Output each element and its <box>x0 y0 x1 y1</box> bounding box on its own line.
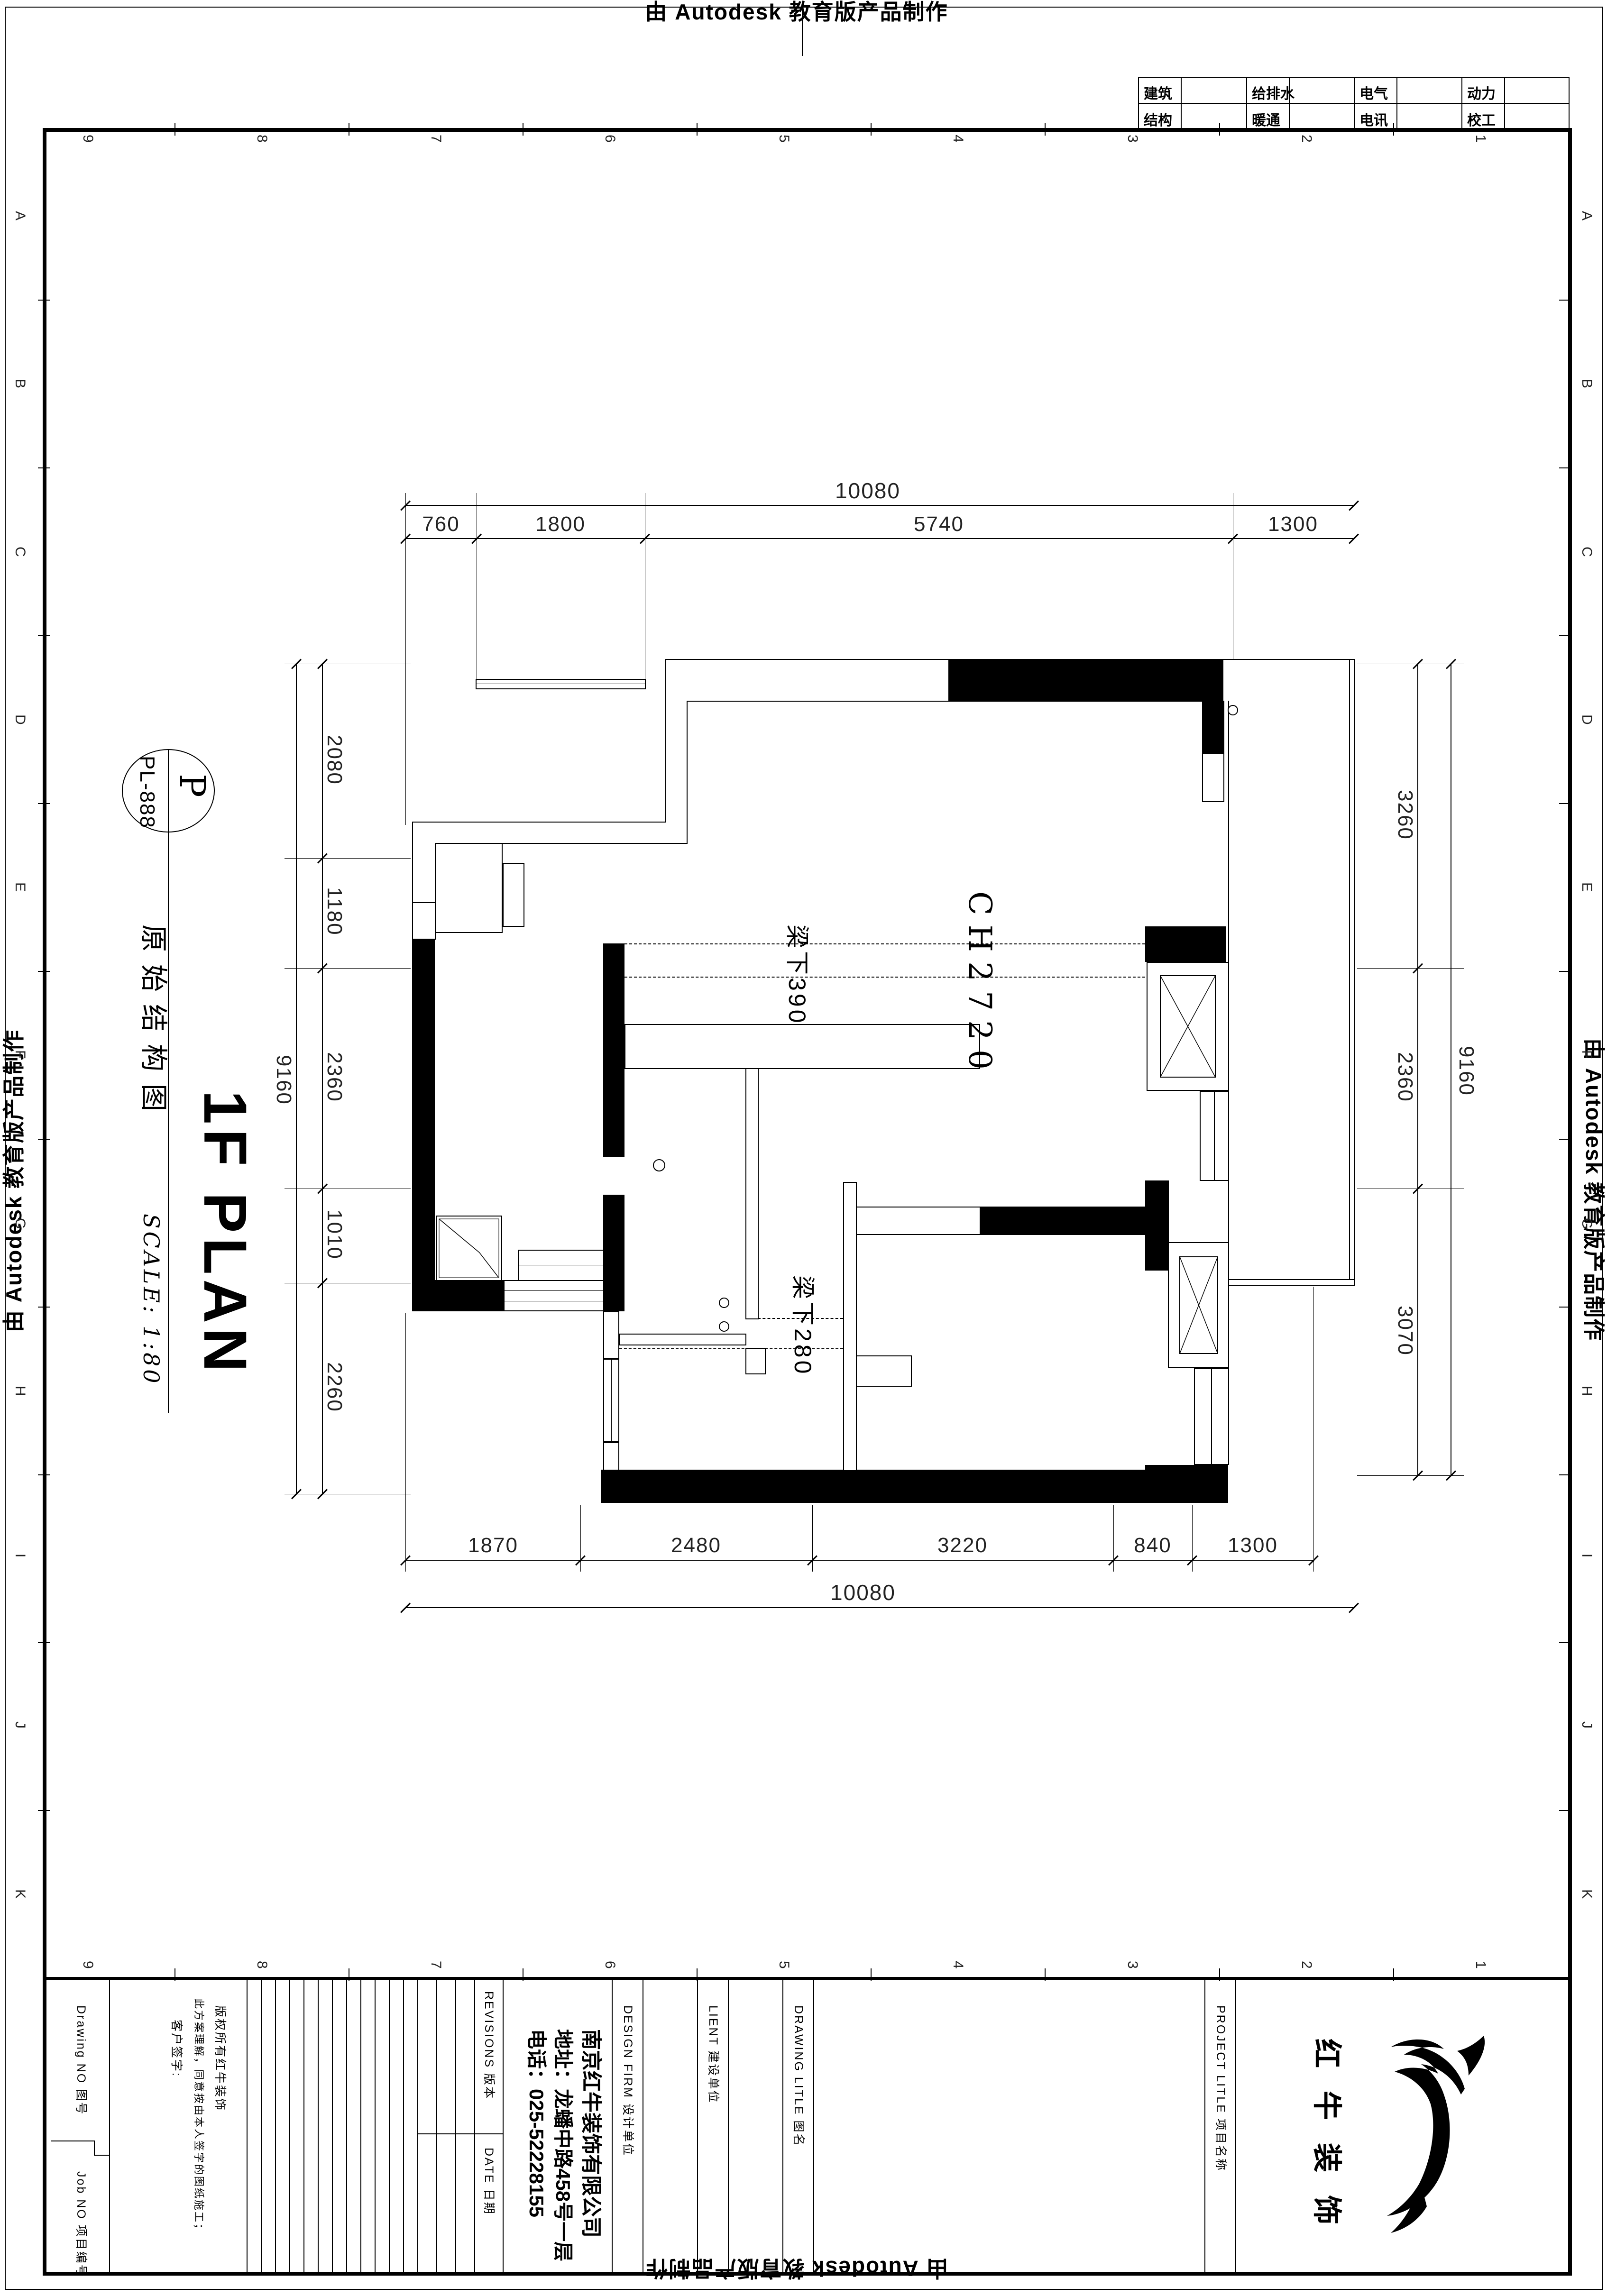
zone-tick-bottom <box>349 1968 349 1981</box>
titleblock-divider <box>332 1980 333 2274</box>
room-label: CH2720 <box>964 891 995 1079</box>
zone-tick-left <box>38 971 50 972</box>
dim-label: 2480 <box>671 1535 721 1556</box>
closet-wall <box>745 1055 759 1319</box>
zone-tick-bottom <box>871 1968 872 1981</box>
zone-tick-left <box>38 1810 50 1811</box>
divider-thin-bottom <box>856 1234 1146 1235</box>
dim-label: 2360 <box>324 1052 345 1102</box>
zone-tick-right <box>1559 1307 1571 1308</box>
bay-window-box <box>435 843 503 933</box>
zone-number-bottom: 7 <box>429 1961 443 1969</box>
dim-line-top-seg <box>405 538 1354 539</box>
zone-letter-left: I <box>13 1554 27 1557</box>
dim-ext <box>580 1505 581 1572</box>
dim-line-right-overall <box>1451 664 1451 1475</box>
zone-letter-left: G <box>13 1218 27 1229</box>
window-under-column <box>1202 753 1224 802</box>
dim-label: 1300 <box>1228 1535 1278 1556</box>
dim-ext <box>285 1189 411 1189</box>
dim-label: 5740 <box>914 514 964 535</box>
zone-tick-bottom <box>1393 1968 1394 1981</box>
dim-ext <box>1192 1505 1193 1572</box>
logo-bull-icon <box>1377 2034 1491 2238</box>
zone-letter-right: F <box>1579 1050 1594 1059</box>
zone-letter-left: K <box>13 1889 27 1899</box>
tb-drawing-title: DRAWING LITLE 图名 <box>792 2005 804 2147</box>
kitchen-counter <box>518 1250 604 1281</box>
zone-letter-right: A <box>1579 211 1594 220</box>
zone-number-top: 8 <box>255 135 269 143</box>
zone-number-bottom: 8 <box>255 1961 269 1969</box>
balcony-right-wall <box>1349 659 1355 1286</box>
dim-top-overall: 10080 <box>835 480 900 502</box>
titleblock-divider <box>375 1980 376 2274</box>
titleblock-left-split-a <box>51 2140 95 2141</box>
drawing-code-letter: P <box>174 774 210 797</box>
dim-label: 1870 <box>468 1535 518 1556</box>
discipline-label: 电讯 <box>1359 109 1388 129</box>
zone-tick-left <box>38 1474 50 1475</box>
dim-ext <box>812 1505 813 1572</box>
zone-number-bottom: 2 <box>1299 1961 1313 1969</box>
kitchen-window-l1 <box>504 1290 604 1291</box>
titleblock-divider <box>1204 1980 1205 2274</box>
dim-line-bottom-seg <box>405 1560 1313 1561</box>
titleblock-left-split-c <box>94 2155 110 2156</box>
dim-ext <box>285 664 411 664</box>
beam-soffit-box <box>624 1024 980 1069</box>
zone-tick-top <box>871 123 872 136</box>
shaft1-icon <box>1160 975 1216 1078</box>
plot-stamp-bottom: 由 Autodesk 教育版产品制作 <box>645 2258 948 2279</box>
discipline-label: 电气 <box>1359 82 1388 103</box>
zone-letter-right: I <box>1579 1554 1594 1557</box>
dim-ext <box>285 968 411 969</box>
zone-number-top: 7 <box>429 135 443 143</box>
tb-drawing-no: Drawing NO 图号 <box>75 2005 87 2115</box>
discipline-col-line <box>1504 77 1505 129</box>
titleblock-divider <box>346 1980 347 2274</box>
titleblock-divider <box>455 1980 456 2274</box>
zone-tick-top <box>697 123 698 136</box>
dim-label: 840 <box>1134 1535 1171 1556</box>
zone-number-top: 6 <box>603 135 617 143</box>
wall-right-band <box>1145 926 1226 962</box>
dim-ext <box>1113 1505 1114 1572</box>
discipline-label: 给排水 <box>1252 82 1295 103</box>
zone-letter-right: H <box>1579 1386 1594 1396</box>
dim-ext <box>1357 968 1464 969</box>
zone-tick-right <box>1559 635 1571 636</box>
wall-kitchen-bottom-l <box>412 1280 504 1311</box>
zone-tick-right <box>1559 1139 1571 1140</box>
zone-tick-right <box>1559 803 1571 804</box>
dim-label: 2080 <box>324 735 345 785</box>
zone-letter-right: C <box>1579 547 1594 557</box>
zone-letter-right: D <box>1579 714 1594 725</box>
door-jamb <box>856 1355 912 1387</box>
zone-tick-left <box>38 467 50 468</box>
titleblock-divider <box>697 1980 698 2274</box>
tb-copyright-2: 此方案理解，同意按由本人签字的图纸施工； <box>193 1998 204 2235</box>
zone-letter-left: J <box>13 1721 27 1729</box>
zone-number-top: 9 <box>81 135 95 143</box>
zone-tick-left <box>38 1307 50 1308</box>
plot-stamp-top: 由 Autodesk 教育版产品制作 <box>645 1 948 23</box>
zone-tick-top <box>1219 123 1220 136</box>
dim-label: 2260 <box>324 1362 345 1412</box>
discipline-col-line <box>1396 77 1397 129</box>
zone-tick-bottom <box>1045 1968 1046 1981</box>
wall-top-inner <box>687 701 1203 702</box>
wall-bottom-black <box>601 1470 1228 1503</box>
zone-tick-left <box>38 300 50 301</box>
titleblock-divider <box>109 1980 110 2274</box>
titleblock-divider <box>403 1980 404 2274</box>
kitchen-window <box>504 1280 604 1311</box>
dim-ext <box>285 858 411 859</box>
zone-tick-top <box>1045 123 1046 136</box>
divider-thin-top <box>856 1207 981 1207</box>
tb-copyright-1: 版权所有红牛装饰 <box>214 2005 226 2112</box>
zone-number-top: 1 <box>1473 135 1488 143</box>
cad-sheet: { "stamp": { "text": "由 Autodesk 教育版产品制作… <box>0 0 1607 2296</box>
kitchen-counter-line <box>518 1265 604 1265</box>
titleblock-divider <box>389 1980 390 2274</box>
tb-revisions: REVISIONS 版本 <box>483 1991 495 2100</box>
drawing-title-cn: 原始结构图 <box>139 924 167 1124</box>
zone-tick-right <box>1559 467 1571 468</box>
dim-ext <box>1233 493 1233 660</box>
titleblock-top-line <box>43 1977 1572 1980</box>
titleblock-divider <box>782 1980 783 2274</box>
zone-number-top: 5 <box>777 135 791 143</box>
titleblock-divider <box>360 1980 361 2274</box>
zone-tick-right <box>1559 1474 1571 1475</box>
wall-step-v2 <box>687 701 688 844</box>
window-right-low-line <box>1211 1368 1212 1465</box>
dim-ext <box>405 493 406 825</box>
zone-tick-right <box>1559 971 1571 972</box>
zone-letter-left: D <box>13 714 27 725</box>
zone-number-top: 4 <box>951 135 965 143</box>
tb-client: LIENT 建设单位 <box>707 2005 719 2104</box>
wall-kitchen-right-a <box>603 943 624 1157</box>
window-right-mid-line <box>1214 1091 1215 1181</box>
column-divider <box>1145 1180 1169 1271</box>
shower-corner <box>436 1216 502 1281</box>
titleblock-divider <box>436 1980 437 2274</box>
drawing-title-en: 1F PLAN <box>194 1090 255 1376</box>
inner-frame <box>43 128 1572 2276</box>
column-br <box>1145 1465 1228 1503</box>
zone-number-bottom: 6 <box>603 1961 617 1969</box>
discipline-label: 建筑 <box>1144 82 1172 103</box>
titleblock-divider <box>247 1980 248 2274</box>
zone-tick-top <box>174 123 175 136</box>
dim-label: 1010 <box>324 1209 345 1260</box>
discipline-col-line <box>1354 77 1355 129</box>
zone-letter-left: A <box>13 211 27 220</box>
fitting-circle-2 <box>719 1298 729 1308</box>
tb-job-no: Job NO 项目编号 <box>75 2171 87 2278</box>
wall-left-ext <box>412 940 435 1306</box>
beam390-dash2 <box>624 977 1145 978</box>
tb-firm-tel: 电话：025-52228155 <box>526 2029 546 2217</box>
titleblock-divider <box>813 1980 814 2274</box>
dim-ext <box>1357 664 1464 664</box>
window-1800-mid <box>476 684 646 684</box>
beam-label-2: 梁下280 <box>791 1275 815 1376</box>
titleblock-divider <box>417 1980 418 2274</box>
zone-letter-left: E <box>13 882 27 892</box>
discipline-col-line <box>1181 77 1182 129</box>
dim-label: 1300 <box>1268 514 1318 535</box>
titleblock-divider <box>612 1980 613 2274</box>
zone-tick-left <box>38 635 50 636</box>
drawing-scale: SCALE: 1:80 <box>140 1214 162 1386</box>
bedroom2-top-wall <box>619 1334 746 1345</box>
tb-rev-date: DATE 日期 <box>483 2148 495 2215</box>
zone-number-bottom: 1 <box>1473 1961 1488 1969</box>
zone-number-top: 2 <box>1299 135 1313 143</box>
titleblock-divider <box>728 1980 729 2274</box>
zone-tick-left <box>38 803 50 804</box>
plot-stamp-right: 由 Autodesk 教育版产品制作 <box>1583 1038 1605 1341</box>
drawing-code: PL-888 <box>137 756 157 829</box>
zone-tick-right <box>1559 1810 1571 1811</box>
zone-number-bottom: 3 <box>1125 1961 1139 1969</box>
zone-letter-left: F <box>13 1050 27 1059</box>
dim-line-top-overall <box>405 505 1354 506</box>
dim-ext <box>1357 1475 1464 1476</box>
titleblock-divider <box>1235 1980 1236 2274</box>
zone-tick-right <box>1559 1642 1571 1643</box>
fitting-circle-1 <box>1228 705 1238 715</box>
tb-project-title: PROJECT LITLE 项目名称 <box>1214 2005 1226 2172</box>
kitchen-window-l2 <box>504 1301 604 1301</box>
zone-tick-right <box>1559 300 1571 301</box>
bay-window-sliver <box>503 863 524 927</box>
titleblock-divider <box>303 1980 304 2274</box>
balcony-bottom-wall <box>1228 1279 1355 1286</box>
zone-letter-left: H <box>13 1386 27 1396</box>
discipline-label: 结构 <box>1144 109 1172 129</box>
beam-label-1: 梁下390 <box>785 924 809 1025</box>
left-window <box>412 902 436 940</box>
discipline-table: 建筑结构给排水暖通电气电讯动力校工 <box>1138 77 1570 129</box>
titleblock-rev-split <box>417 2133 503 2134</box>
dim-line-right-seg <box>1417 664 1418 1475</box>
window-1800 <box>476 679 646 689</box>
zone-letter-right: J <box>1579 1721 1594 1729</box>
discipline-label: 校工 <box>1467 109 1496 129</box>
dim-ext <box>645 493 645 680</box>
wall-step-v1 <box>665 659 666 823</box>
discipline-label: 暖通 <box>1252 109 1280 129</box>
fitting-circle-3 <box>719 1321 729 1332</box>
tb-firm-name: 南京红牛装饰有限公司 <box>580 2029 601 2238</box>
dim-ext <box>405 1313 406 1572</box>
zone-tick-top <box>349 123 349 136</box>
wall-top-black <box>948 659 1223 701</box>
dim-ext <box>477 493 477 680</box>
titleblock-divider <box>503 1980 504 2274</box>
dim-ext <box>285 1494 411 1494</box>
titleblock-divider <box>318 1980 319 2274</box>
zone-letter-right: G <box>1579 1218 1594 1229</box>
dim-right-overall: 9160 <box>1456 1046 1477 1096</box>
zone-letter-right: B <box>1579 379 1594 388</box>
zone-tick-top <box>523 123 523 136</box>
titleblock-divider <box>275 1980 276 2274</box>
wall-kitchen-right-b <box>603 1195 624 1311</box>
dim-label: 3220 <box>937 1535 988 1556</box>
zone-tick-bottom <box>697 1968 698 1981</box>
dim-line-left-overall <box>296 664 297 1494</box>
dim-label: 1180 <box>324 887 345 936</box>
zone-tick-left <box>38 1139 50 1140</box>
titleblock-divider <box>261 1980 262 2274</box>
dim-line-bottom-overall <box>405 1607 1354 1608</box>
zone-letter-left: B <box>13 379 27 388</box>
dim-label: 3260 <box>1395 790 1415 840</box>
bedroom2-left-b <box>603 1442 619 1471</box>
titleblock-divider <box>474 1980 475 2274</box>
zone-tick-left <box>38 1642 50 1643</box>
zone-number-bottom: 4 <box>951 1961 965 1969</box>
tb-copyright-3: 客户签字: <box>170 2020 182 2077</box>
dim-ext <box>1313 1287 1314 1572</box>
zone-number-bottom: 5 <box>777 1961 791 1969</box>
discipline-label: 动力 <box>1467 82 1496 103</box>
fitting-circle-4 <box>653 1159 665 1171</box>
plot-stamp-left: 由 Autodesk 教育版产品制作 <box>3 1029 25 1332</box>
titleblock-divider <box>643 1980 643 2274</box>
zone-tick-bottom <box>1219 1968 1220 1981</box>
zone-letter-right: E <box>1579 882 1594 892</box>
dim-ext <box>1357 1189 1464 1189</box>
zone-tick-top <box>1393 123 1394 136</box>
zone-tick-bottom <box>174 1968 175 1981</box>
dim-ext <box>1354 493 1354 660</box>
bedroom2-window-line <box>611 1359 612 1442</box>
zone-tick-bottom <box>523 1968 523 1981</box>
bedroom2-left-a <box>603 1311 619 1359</box>
logo-text: 红牛装饰 <box>1312 2039 1341 2247</box>
shaft2-icon <box>1179 1256 1218 1354</box>
bedroom1-left-wall <box>843 1182 857 1471</box>
closet-wall-notch <box>745 1348 766 1374</box>
dim-ext <box>285 1283 411 1283</box>
wall-divider-black <box>980 1207 1145 1234</box>
tb-design-firm: DESIGN FIRM 设计单位 <box>622 2005 634 2157</box>
beam390-dash1 <box>624 943 1145 944</box>
dim-label: 1800 <box>535 514 586 535</box>
zone-letter-right: K <box>1579 1889 1594 1899</box>
wall-left-upper <box>412 822 413 903</box>
dim-bottom-overall: 10080 <box>830 1582 896 1603</box>
column-tr <box>1202 701 1224 753</box>
discipline-col-line <box>1461 77 1462 129</box>
dim-label: 2360 <box>1395 1052 1415 1102</box>
zone-number-top: 3 <box>1125 135 1139 143</box>
discipline-col-line <box>1246 77 1247 129</box>
dim-left-overall: 9160 <box>273 1055 294 1105</box>
kitchen-top-outer <box>412 822 666 823</box>
titleblock-left-split-b <box>94 2140 95 2156</box>
zone-number-bottom: 9 <box>81 1961 95 1969</box>
tb-firm-addr: 地址：龙蟠中路458号一层 <box>553 2029 573 2261</box>
titleblock-divider <box>289 1980 290 2274</box>
dim-label: 3070 <box>1395 1306 1415 1356</box>
zone-letter-left: C <box>13 547 27 557</box>
dim-label: 760 <box>422 514 459 535</box>
